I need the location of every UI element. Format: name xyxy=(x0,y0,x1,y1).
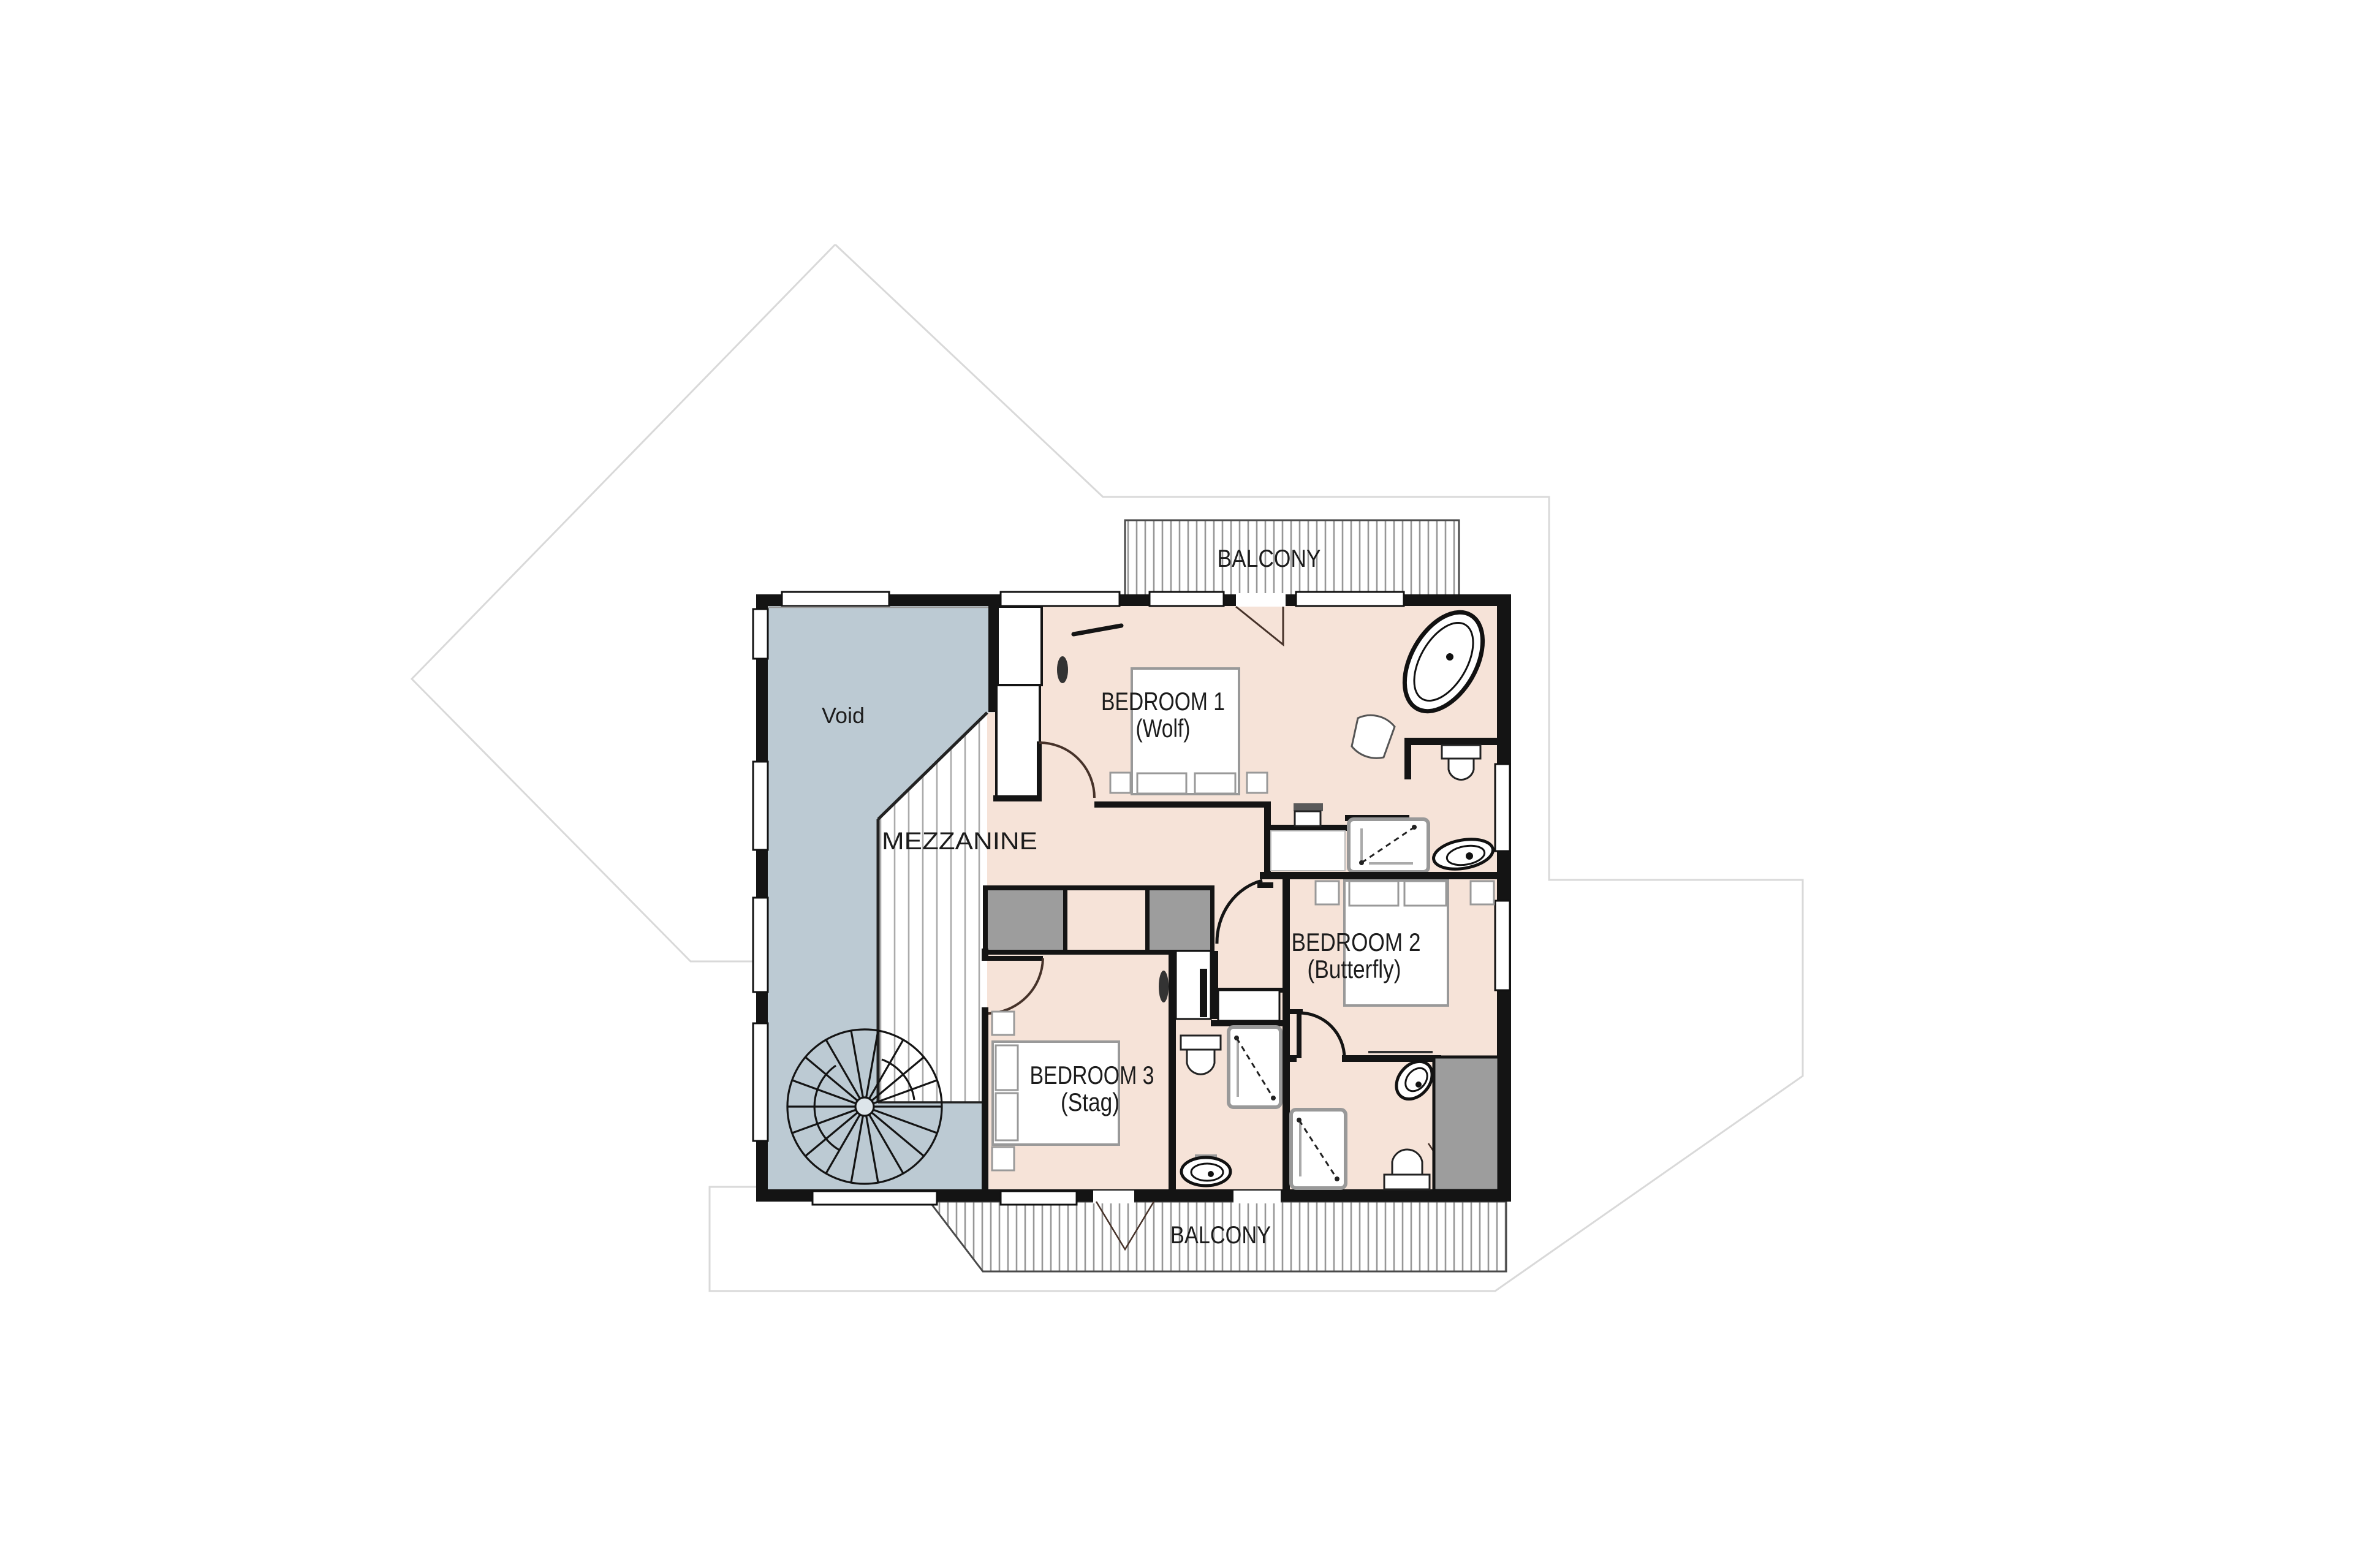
svg-text:BALCONY: BALCONY xyxy=(1170,1222,1271,1249)
svg-text:(Butterfly): (Butterfly) xyxy=(1308,955,1401,983)
svg-text:BEDROOM 1: BEDROOM 1 xyxy=(1101,687,1225,716)
svg-text:BEDROOM 2: BEDROOM 2 xyxy=(1292,928,1421,956)
svg-text:MEZZANINE: MEZZANINE xyxy=(882,828,1037,855)
svg-text:(Stag): (Stag) xyxy=(1061,1088,1120,1116)
svg-text:(Wolf): (Wolf) xyxy=(1136,714,1191,743)
svg-text:BEDROOM 3: BEDROOM 3 xyxy=(1030,1061,1154,1089)
svg-text:Void: Void xyxy=(822,703,865,728)
svg-text:BALCONY: BALCONY xyxy=(1218,545,1321,572)
